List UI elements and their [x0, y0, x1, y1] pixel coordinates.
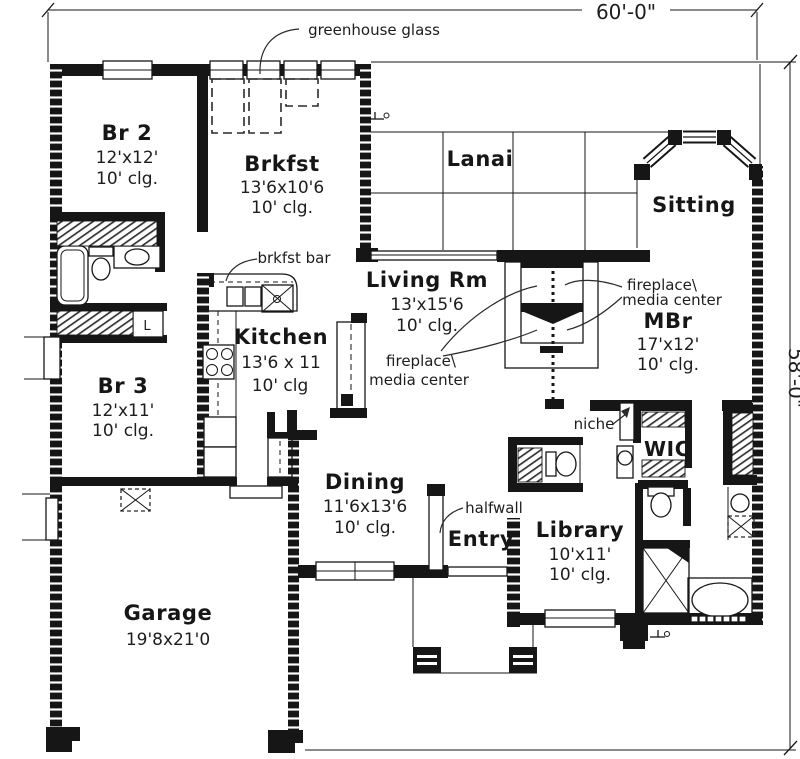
hose-bib-bottom — [650, 630, 670, 637]
label-fireplace-left-1: fireplace\ — [386, 352, 457, 370]
label-linen: L — [143, 319, 151, 334]
label-halfwall: halfwall — [465, 499, 523, 517]
tub-window-sill — [691, 616, 746, 622]
label-sitting: Sitting — [652, 193, 736, 217]
shower — [643, 548, 689, 613]
attic-access — [121, 489, 150, 511]
bath-toilet — [648, 487, 674, 517]
vanity-sink — [114, 246, 160, 268]
pantry-cabinet — [337, 322, 365, 410]
label-mbr-clg: 10' clg. — [637, 355, 699, 375]
label-br2-clg: 10' clg. — [96, 169, 158, 189]
pedestal-sink — [617, 446, 633, 478]
label-wic: WIC — [644, 437, 690, 461]
floor-plan: 60'-0" 58'-0" — [0, 0, 800, 759]
label-lanai: Lanai — [447, 147, 514, 171]
label-brkfst-clg: 10' clg. — [251, 198, 313, 218]
closet-mbr — [732, 413, 753, 475]
halfwall-element — [427, 484, 445, 570]
hose-bib-top — [369, 112, 389, 119]
label-br2-size: 12'x12' — [96, 148, 159, 168]
porch-column-right — [509, 647, 537, 673]
side-steps — [620, 625, 648, 649]
greenhouse-panels — [212, 79, 318, 133]
label-kitchen-clg: 10' clg — [252, 376, 309, 396]
skylight — [728, 516, 754, 537]
label-dining-size: 11'6x13'6 — [323, 497, 407, 517]
label-garage-size: 19'8x21'0 — [126, 630, 210, 650]
sitting-bay-windows — [634, 130, 762, 180]
label-dining-name: Dining — [325, 470, 405, 494]
label-brkfst-size: 13'6x10'6 — [240, 178, 324, 198]
label-brkfst-name: Brkfst — [244, 152, 320, 176]
label-kitchen-size: 13'6 x 11 — [241, 353, 321, 373]
closet-br2 — [57, 221, 157, 246]
label-br2-name: Br 2 — [102, 121, 153, 145]
corner-counter — [262, 285, 293, 312]
label-library-name: Library — [536, 518, 624, 542]
toilet-room — [518, 448, 576, 482]
stove — [203, 345, 234, 379]
label-br3-clg: 10' clg. — [92, 421, 154, 441]
window-library — [545, 610, 615, 627]
front-door — [448, 567, 507, 576]
label-entry: Entry — [448, 527, 514, 551]
kitchen-sink — [227, 287, 261, 306]
floor-plan-canvas: 60'-0" 58'-0" — [0, 0, 800, 759]
label-living-clg: 10' clg. — [396, 316, 458, 336]
label-br3-size: 12'x11' — [92, 401, 155, 421]
garage-elements — [121, 486, 282, 511]
refrigerator — [204, 417, 236, 477]
label-br3-name: Br 3 — [98, 374, 149, 398]
label-niche: niche — [574, 415, 615, 433]
window-garage — [22, 494, 58, 540]
label-living-size: 13'x15'6 — [390, 295, 464, 315]
toilet — [89, 247, 113, 280]
closet-br3 — [57, 311, 133, 335]
lanai-grid — [371, 132, 670, 250]
slider-lanai — [371, 251, 497, 260]
window-br3 — [24, 337, 60, 379]
bath-vanity — [728, 487, 749, 540]
label-dining-clg: 10' clg. — [334, 518, 396, 538]
label-library-clg: 10' clg. — [549, 565, 611, 585]
label-garage-name: Garage — [124, 601, 213, 625]
garage-step — [230, 486, 282, 498]
dim-width: 60'-0" — [596, 0, 656, 24]
label-fireplace-left-2: media center — [369, 371, 470, 389]
wic-rod-top — [642, 412, 685, 427]
fireplace-media-center — [505, 262, 598, 409]
label-living-name: Living Rm — [366, 268, 488, 292]
label-brkfst-bar: brkfst bar — [257, 249, 331, 267]
label-kitchen-name: Kitchen — [234, 325, 328, 349]
porch-column-left — [413, 647, 441, 673]
window-dining — [316, 562, 394, 580]
wic-rod-bottom — [642, 460, 685, 477]
entry-porch — [413, 484, 648, 673]
dim-height: 58'-0" — [784, 348, 800, 408]
bathtub — [57, 246, 88, 305]
label-fireplace-right-2: media center — [622, 291, 723, 309]
label-mbr-name: MBr — [643, 309, 692, 333]
label-greenhouse: greenhouse glass — [308, 21, 440, 39]
window-br2 — [103, 61, 152, 79]
label-mbr-size: 17'x12' — [637, 335, 700, 355]
label-library-size: 10'x11' — [549, 545, 612, 565]
